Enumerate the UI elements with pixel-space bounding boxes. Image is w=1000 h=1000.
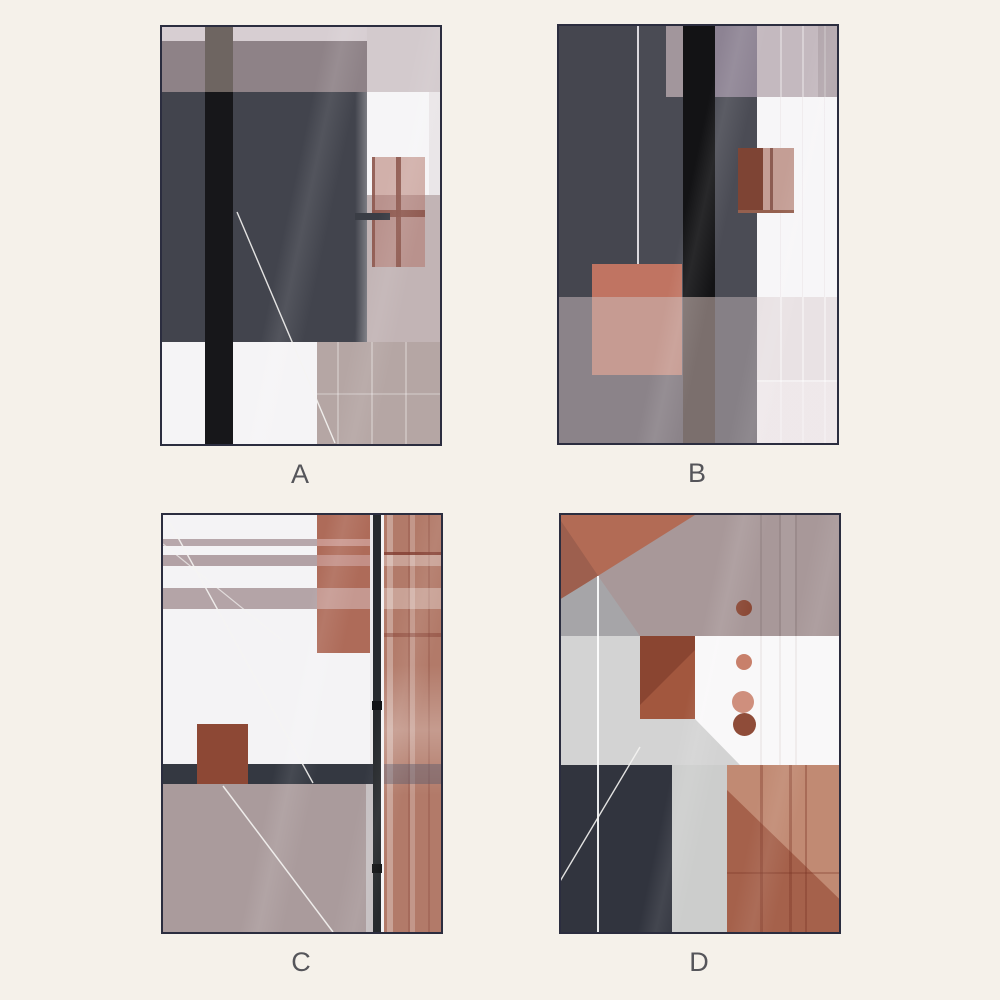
diagonal-lines-c xyxy=(163,515,441,932)
diagonal-lines-a xyxy=(162,27,440,444)
diagonal-lines-d xyxy=(561,515,839,932)
artwork-option-b[interactable]: B xyxy=(557,24,839,445)
terracotta-square-top xyxy=(592,264,682,297)
art-frame-c xyxy=(161,513,443,934)
artwork-option-d[interactable]: D xyxy=(559,513,841,934)
artwork-label-a: A xyxy=(160,459,442,490)
artwork-label-b: B xyxy=(557,458,839,489)
right-top-mauve-dark-strip xyxy=(818,26,837,97)
art-c xyxy=(163,515,441,932)
art-d xyxy=(561,515,839,932)
artwork-option-c[interactable]: C xyxy=(161,513,443,934)
rust-rect-light xyxy=(763,148,794,213)
art-b xyxy=(559,26,837,443)
rust-rect-seam xyxy=(770,148,773,213)
art-frame-d xyxy=(559,513,841,934)
artwork-label-d: D xyxy=(559,947,841,978)
art-frame-a xyxy=(160,25,442,446)
bottom-right-light xyxy=(757,297,837,443)
white-vertical-line xyxy=(637,26,639,264)
mauve-small-rect xyxy=(666,26,683,97)
terracotta-square-bottom xyxy=(592,297,682,375)
rust-rect-bottom-edge xyxy=(738,210,794,213)
art-frame-b xyxy=(557,24,839,445)
page: { "page": { "background_color": "#f5f1ea… xyxy=(0,0,1000,1000)
bottom-stripe-column xyxy=(683,297,715,443)
black-stripe xyxy=(683,26,715,297)
art-a xyxy=(162,27,440,444)
bottom-mid-gray xyxy=(715,297,757,443)
mid-top-mauve xyxy=(715,26,757,97)
rust-rect-dark xyxy=(738,148,763,213)
artwork-option-a[interactable]: A xyxy=(160,25,442,446)
artwork-label-c: C xyxy=(161,947,443,978)
